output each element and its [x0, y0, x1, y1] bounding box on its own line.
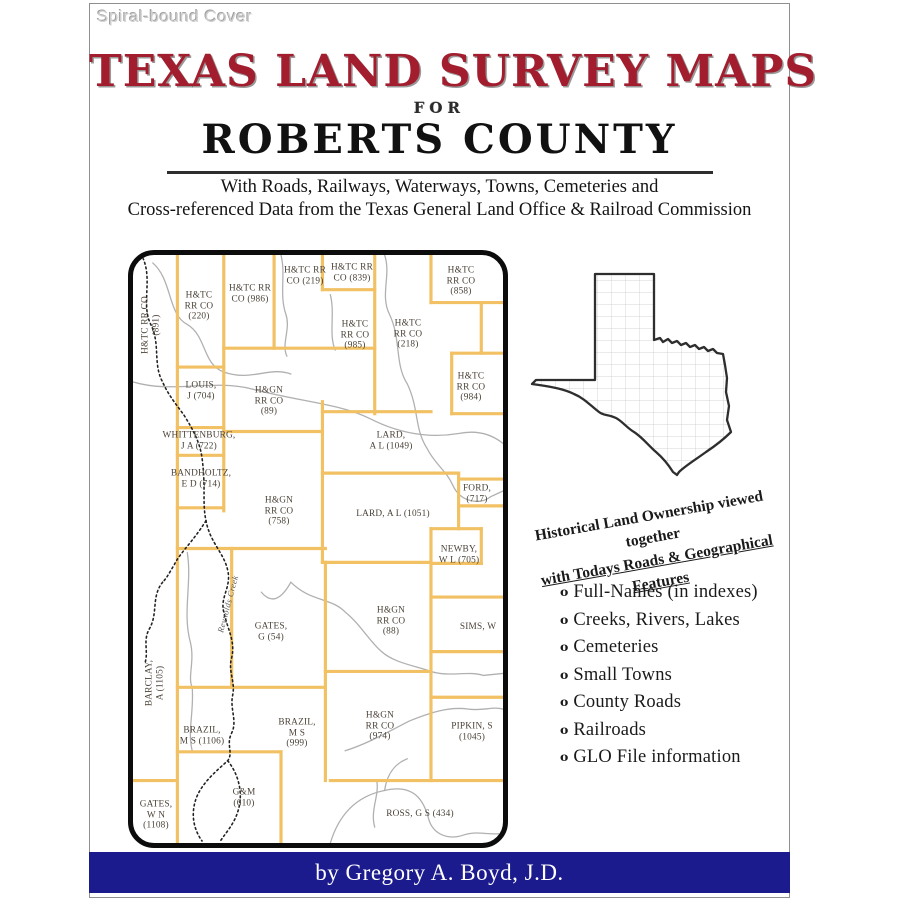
feature-list: oFull-Names (in indexes)oCreeks, Rivers,… [560, 582, 758, 775]
bullet-icon: o [560, 722, 568, 737]
survey-label: GATES,G (54) [255, 622, 287, 643]
title-for-word: FOR [89, 99, 790, 117]
survey-label: H&GNRR CO(88) [377, 605, 406, 637]
survey-label: WHITTENBURG,J A (722) [163, 431, 236, 452]
bullet-icon: o [560, 749, 568, 764]
county-title: ROBERTS COUNTY [89, 116, 790, 163]
title-divider-rule [167, 171, 713, 174]
survey-labels-layer: H&TC RR CO(891)H&TCRR CO(220)H&TC RRCO (… [133, 255, 503, 843]
survey-label: ROSS, G S (434) [386, 809, 454, 820]
survey-label: H&TCRR CO(858) [447, 265, 476, 297]
author-credit: by Gregory A. Boyd, J.D. [315, 860, 563, 886]
subtitle-line-1: With Roads, Railways, Waterways, Towns, … [89, 177, 790, 198]
survey-label: LOUIS,J (704) [186, 381, 217, 402]
feature-label: Full-Names (in indexes) [573, 582, 757, 603]
feature-item: oCreeks, Rivers, Lakes [560, 610, 758, 638]
feature-item: oRailroads [560, 720, 758, 748]
survey-label: BANDHOLTZ,E D (714) [171, 469, 231, 490]
survey-label: GATES,W N(1108) [140, 799, 172, 831]
book-cover: { "page": { "cover_note": "Spiral-bound … [0, 0, 900, 900]
feature-item: oSmall Towns [560, 665, 758, 693]
feature-label: Railroads [573, 720, 646, 741]
survey-label: H&TC RRCO (839) [331, 263, 373, 284]
survey-label: H&TCRR CO(220) [185, 290, 214, 322]
survey-label: H&TC RRCO (986) [229, 284, 271, 305]
feature-label: County Roads [573, 692, 681, 713]
survey-label: NEWBY,W L (705) [439, 545, 480, 566]
survey-label: BRAZIL,M S (1106) [180, 726, 225, 747]
bullet-icon: o [560, 667, 568, 682]
creek-label: Reynolds Creek [215, 574, 240, 634]
feature-item: oFull-Names (in indexes) [560, 582, 758, 610]
survey-label: H&TCRR CO(218) [394, 318, 423, 350]
bullet-icon: o [560, 694, 568, 709]
survey-label: H&TCRR CO(984) [457, 371, 486, 403]
bullet-icon: o [560, 584, 568, 599]
footer-bar: by Gregory A. Boyd, J.D. [89, 852, 790, 893]
survey-label: H&GNRR CO(974) [366, 710, 395, 742]
texas-state-county-map [527, 268, 779, 482]
bullet-icon: o [560, 639, 568, 654]
bullet-icon: o [560, 612, 568, 627]
survey-label: H&TCRR CO(985) [341, 319, 370, 351]
subtitle-line-2: Cross-referenced Data from the Texas Gen… [89, 200, 790, 221]
feature-label: Small Towns [573, 665, 672, 686]
feature-label: Creeks, Rivers, Lakes [573, 610, 740, 631]
feature-label: Cemeteries [573, 637, 658, 658]
feature-item: oGLO File information [560, 747, 758, 775]
feature-item: oCemeteries [560, 637, 758, 665]
survey-label: PIPKIN, S(1045) [451, 722, 493, 743]
survey-label: SIMS, W [460, 622, 496, 633]
book-title: TEXAS LAND SURVEY MAPS [89, 46, 790, 97]
feature-label: GLO File information [573, 747, 740, 768]
survey-map-panel: H&TC RR CO(891)H&TCRR CO(220)H&TC RRCO (… [128, 250, 508, 848]
feature-item: oCounty Roads [560, 692, 758, 720]
survey-label: H&TC RR CO(891) [141, 296, 162, 354]
survey-label: H&GNRR CO(758) [265, 495, 294, 527]
survey-label: BRAZIL,M S(999) [278, 717, 315, 749]
binding-type-note: Spiral-bound Cover [97, 7, 252, 27]
survey-label: G&M(610) [233, 788, 256, 809]
survey-label: H&GNRR CO(89) [255, 385, 284, 417]
survey-label: H&TC RRCO (219) [284, 266, 326, 287]
survey-label: LARD,A L (1049) [370, 431, 413, 452]
survey-label: FORD,(717) [463, 484, 491, 505]
survey-label: BARCLAY,A (1105) [145, 660, 166, 706]
survey-label: LARD, A L (1051) [356, 509, 430, 520]
